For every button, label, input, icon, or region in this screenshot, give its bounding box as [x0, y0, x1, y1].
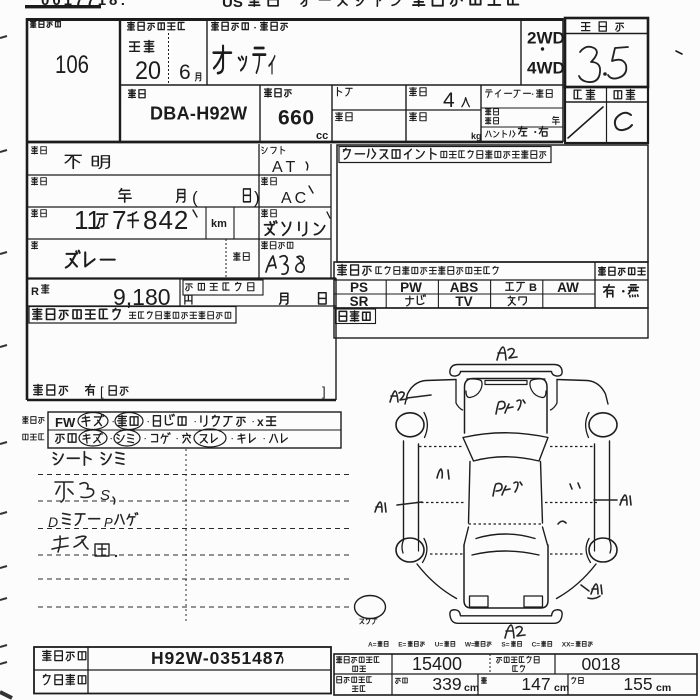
svg-text:(: ( — [192, 188, 198, 207]
svg-text:660: 660 — [278, 107, 315, 130]
svg-text:6: 6 — [179, 61, 191, 84]
svg-text:339: 339 — [432, 674, 461, 694]
svg-text:P: P — [104, 515, 113, 530]
svg-text:0018: 0018 — [582, 654, 621, 674]
svg-text:C=: C= — [532, 642, 541, 649]
svg-text:D: D — [48, 514, 58, 530]
svg-text:155: 155 — [623, 674, 652, 694]
svg-text:cm: cm — [656, 682, 671, 694]
svg-text:4: 4 — [443, 89, 455, 112]
svg-text:4WD: 4WD — [527, 59, 565, 78]
svg-text:]: ] — [322, 384, 326, 399]
svg-text:): ) — [254, 188, 260, 207]
svg-text:kg: kg — [471, 131, 482, 141]
svg-text:842: 842 — [143, 205, 189, 235]
svg-text:AW: AW — [557, 280, 579, 295]
svg-text:S=: S= — [501, 642, 509, 649]
svg-text:147: 147 — [521, 674, 550, 694]
svg-text:W=: W= — [465, 642, 475, 649]
svg-text:20: 20 — [135, 57, 161, 85]
svg-text:XX=: XX= — [562, 642, 575, 649]
svg-text:km: km — [211, 218, 227, 230]
svg-text:US: US — [222, 0, 243, 11]
svg-text:DBA-H92W: DBA-H92W — [150, 104, 247, 124]
svg-text:TV: TV — [455, 294, 472, 309]
svg-text:E=: E= — [398, 642, 406, 649]
svg-text:AT: AT — [272, 159, 299, 176]
svg-text:ABS: ABS — [450, 280, 479, 295]
svg-text:[: [ — [100, 384, 104, 399]
svg-text:AC: AC — [281, 190, 309, 207]
svg-text:A=: A= — [368, 642, 377, 649]
svg-text:FW: FW — [55, 415, 76, 430]
svg-text:x: x — [257, 415, 264, 429]
svg-text:R: R — [31, 286, 39, 298]
svg-text:11: 11 — [74, 205, 101, 235]
svg-text:B: B — [529, 282, 537, 294]
svg-text:cm: cm — [464, 682, 479, 694]
svg-text:H92W-0351487: H92W-0351487 — [151, 648, 284, 668]
svg-text:0017718:: 0017718: — [41, 0, 128, 9]
svg-text:PW: PW — [400, 280, 422, 295]
svg-text:2WD: 2WD — [527, 29, 565, 48]
svg-text:PS: PS — [350, 280, 368, 295]
svg-text:15400: 15400 — [412, 654, 462, 674]
svg-text:U=: U= — [435, 642, 444, 649]
svg-text:cc: cc — [316, 130, 328, 142]
svg-text:SR: SR — [350, 294, 369, 309]
svg-text:7: 7 — [112, 205, 126, 235]
svg-text:cm: cm — [554, 682, 569, 694]
svg-text:106: 106 — [55, 51, 89, 79]
